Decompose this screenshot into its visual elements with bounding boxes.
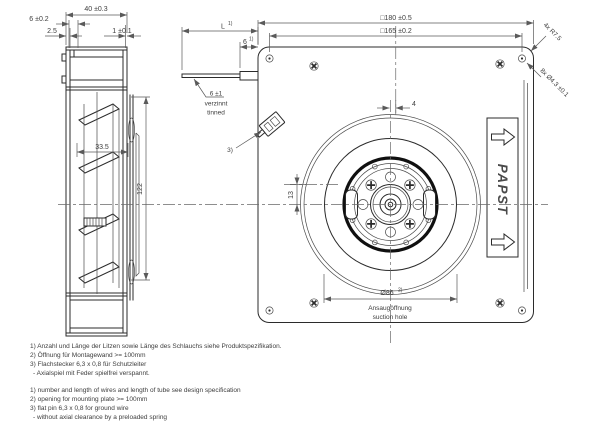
dim-suction-label: Ø86 (380, 290, 393, 297)
connector-note-ref: 3) (227, 147, 233, 154)
footnote-en-2: 2) opening for mounting plate >= 100mm (30, 396, 147, 403)
tinned-length-label: 6 ±1 (210, 91, 223, 98)
side-view (62, 47, 139, 336)
dim-inner-label: 33.5 (95, 144, 109, 151)
footnote-en-4: - without axial clearance by a preloaded… (33, 414, 167, 421)
technical-drawing-canvas: PAPST 40 ±0.3 6 ±0.2 2.5 1 ±0.1 (0, 0, 600, 428)
housing-tab (62, 54, 66, 61)
tinned-label-en: tinned (207, 110, 225, 117)
footnote-de-4: - Axialspiel mit Feder spielfrei verspan… (33, 370, 150, 377)
footnote-de-1: 1) Anzahl und Länge der Litzen sowie Län… (30, 343, 282, 350)
dim-wire-length-label: L (221, 24, 225, 31)
dim-step-label: 6 ±0.2 (29, 16, 49, 23)
wire-sleeve (240, 72, 260, 81)
dim-height-label: 122 (137, 183, 144, 195)
brand-strip: PAPST (487, 118, 518, 257)
footnote-de-3: 3) Flachstecker 6,3 x 0,8 für Schutzleit… (30, 361, 147, 368)
impeller-blades (79, 92, 119, 294)
corner-radius-note: 4x R7.5 (542, 22, 563, 43)
footnotes-german: 1) Anzahl und Länge der Litzen sowie Län… (30, 343, 282, 377)
footnote-de-2: 2) Öffnung für Montagewand >= 100mm (30, 351, 146, 359)
mounting-holes-note: 8x Ø4.3 ±0.1 (538, 67, 570, 99)
suction-label-de: Ansaugöffnung (368, 305, 412, 312)
housing-tab (62, 76, 66, 83)
dim-outer-square-label: □180 ±0.5 (380, 15, 412, 22)
tinned-label-de: verzinnt (205, 101, 228, 108)
footnote-en-1: 1) number and length of wires and length… (30, 387, 241, 394)
dim-depth-label: 40 ±0.3 (84, 6, 107, 13)
dim-wire-length-note: 1) (228, 21, 233, 27)
dim-offset-x-label: 4 (412, 101, 416, 108)
footnotes-english: 1) number and length of wires and length… (30, 387, 241, 421)
dim-gap-label: 1 ±0.1 (112, 28, 132, 35)
lead-wire (182, 72, 260, 81)
dim-offset-y-label: 13 (288, 191, 295, 199)
footnote-en-3: 3) flat pin 6,3 x 0,8 for ground wire (30, 405, 129, 412)
dim-plate-label: 2.5 (47, 28, 57, 35)
dim-hole-square-label: □165 ±0.2 (380, 28, 412, 35)
fan-drawing: PAPST 40 ±0.3 6 ±0.2 2.5 1 ±0.1 (0, 0, 600, 428)
dim-wire-exit-note: 1) (249, 37, 254, 43)
brand-logo: PAPST (495, 164, 510, 216)
inlet-ring-profile (129, 95, 140, 300)
dim-wire-exit-label: 6 (243, 39, 247, 46)
suction-label-en: suction hole (373, 314, 408, 321)
dim-suction-note: 2) (398, 288, 403, 294)
dimensions-lead-wire: L 1) 6 1) 6 ±1 verzinnt tinned (182, 21, 258, 117)
